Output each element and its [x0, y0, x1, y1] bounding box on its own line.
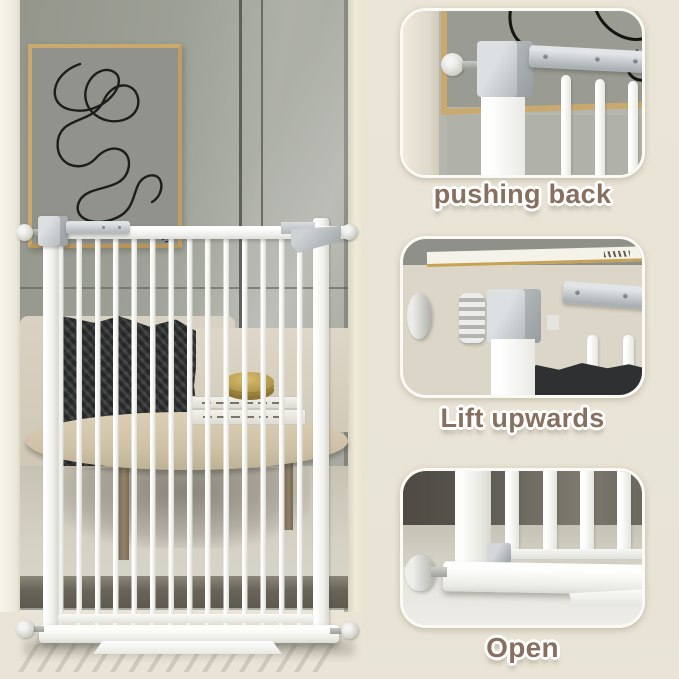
gate-left-post [43, 218, 58, 643]
product-instruction-image: pushing back Lift upwards [0, 0, 679, 679]
gate-bar [617, 471, 631, 557]
step-label-lift-upwards: Lift upwards [400, 403, 645, 434]
doorway-wall-closeup [403, 11, 439, 178]
instruction-steps: pushing back Lift upwards [364, 0, 679, 679]
pressure-spindle [462, 61, 478, 69]
latch-tab [547, 315, 559, 330]
gate-post [491, 339, 535, 398]
gate-bar [595, 79, 605, 178]
step-label-pushing-back: pushing back [400, 179, 645, 210]
gate-bar [580, 471, 594, 557]
wall-mount-disc [341, 224, 357, 240]
step-label-open: Open [400, 632, 645, 664]
floor-behind-closeup [403, 525, 645, 567]
gate-floor-plate [93, 641, 282, 654]
gate-vertical-bars [58, 233, 317, 630]
latch-handle-lifted [562, 281, 645, 309]
wall-mount-disc [16, 620, 34, 638]
screw [595, 56, 600, 61]
step-panel-pushing-back [400, 8, 645, 178]
gate-right-post [313, 218, 329, 643]
gate-latch-housing [38, 216, 68, 246]
screw [575, 290, 580, 295]
screw [623, 293, 628, 298]
bottom-latch-block [487, 543, 511, 563]
squiggle-drawing [32, 48, 178, 244]
signature-marks [604, 251, 630, 258]
gate-post [481, 95, 525, 178]
screw [118, 226, 121, 229]
doorway-wall-right [348, 0, 364, 612]
wall-mount-disc [341, 622, 358, 639]
latch-housing [477, 41, 533, 97]
wall-mount-disc [16, 224, 33, 241]
gate-latch-handle [66, 221, 130, 234]
gate-bottom-bar-closeup [443, 561, 645, 595]
dark-background-strip [403, 471, 645, 525]
blanket-closeup [521, 361, 645, 398]
screw [633, 58, 638, 63]
gate-bar [561, 75, 571, 178]
pressure-spindle [431, 567, 447, 577]
step-panel-lift-upwards [400, 236, 645, 398]
gate-bottom-bar [39, 625, 339, 643]
door-bottom-rail-open [491, 549, 645, 559]
living-room-photo [0, 0, 364, 679]
screw [543, 54, 548, 59]
gate-bar [543, 471, 557, 557]
screw [102, 226, 105, 229]
doorway-wall-left [0, 0, 20, 612]
gate-door-bottom-rail [58, 614, 314, 623]
gate-bar [628, 81, 638, 178]
wall-mount-disc [441, 53, 464, 76]
latch-housing [487, 289, 541, 343]
step-panel-open [400, 468, 645, 628]
wall-below-frame [447, 115, 645, 178]
adjuster-knob [459, 293, 485, 343]
